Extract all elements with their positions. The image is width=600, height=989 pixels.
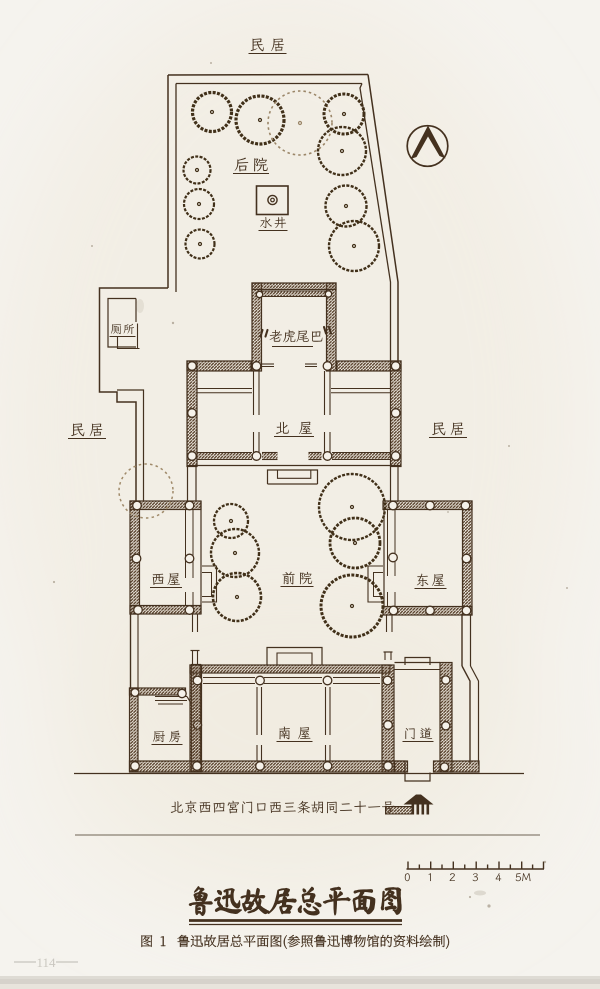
svg-text:114: 114 [36, 955, 56, 970]
